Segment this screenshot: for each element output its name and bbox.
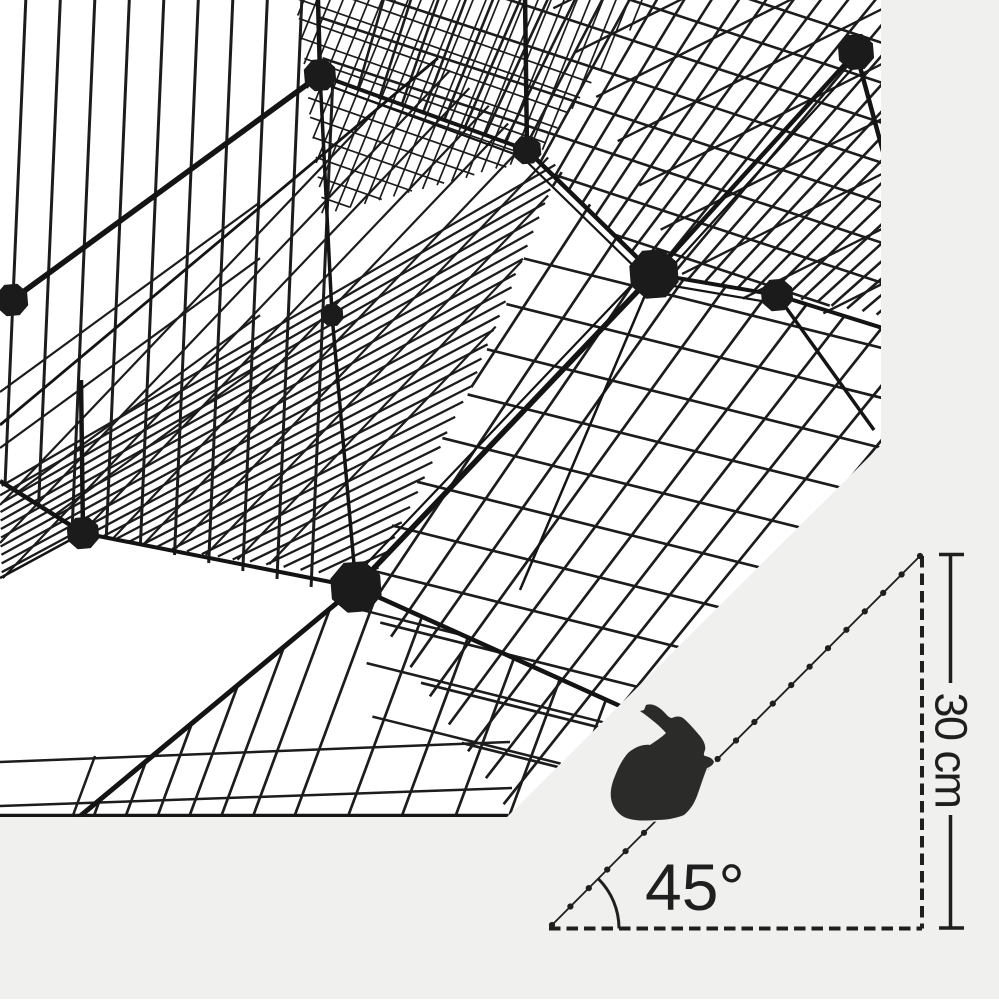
svg-text:45°: 45° bbox=[645, 850, 745, 924]
svg-text:30 cm: 30 cm bbox=[926, 692, 977, 807]
